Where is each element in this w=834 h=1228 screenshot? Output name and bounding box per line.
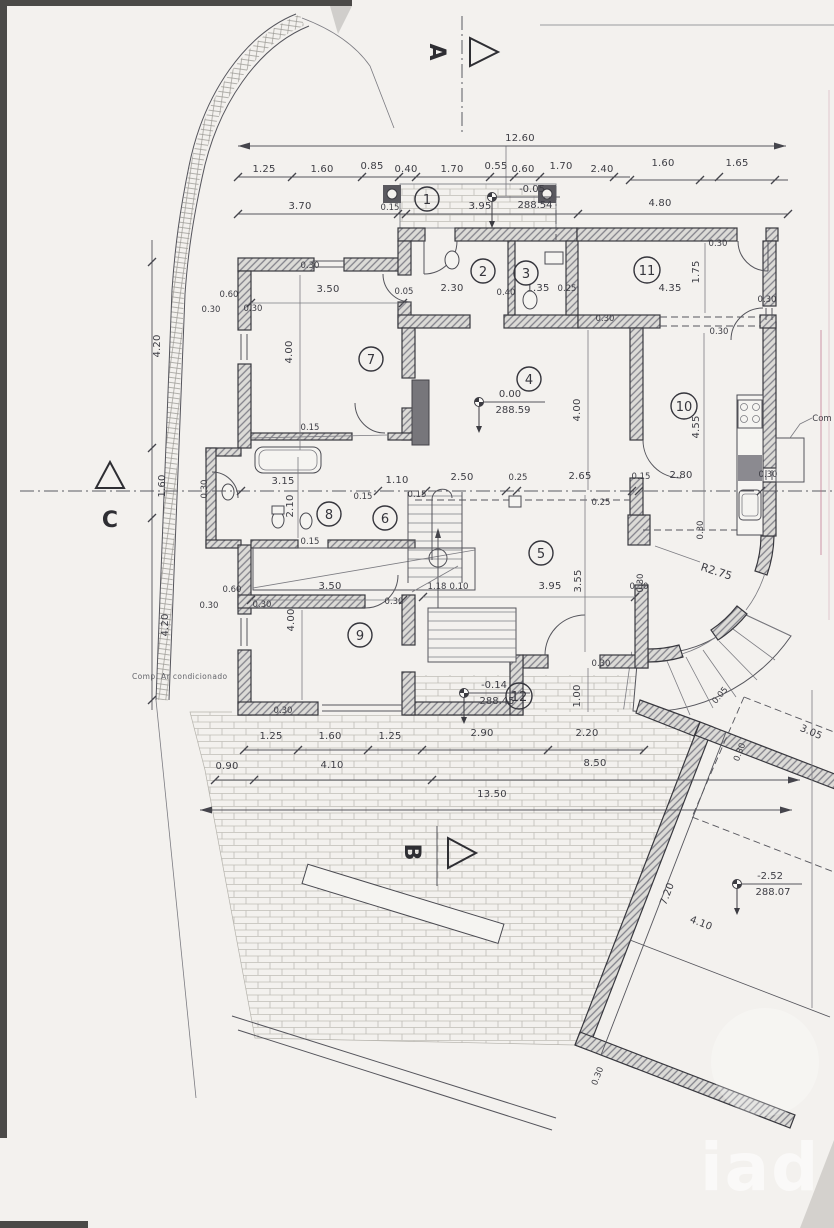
dim-label: 1.18 <box>428 582 447 592</box>
dim-label: 0.15 <box>354 492 373 502</box>
dim-label: 0.25 <box>509 473 528 483</box>
dim-label: 1.25 <box>378 731 401 742</box>
dim-label: 0.30 <box>202 305 221 315</box>
room-number: 1 <box>423 193 431 208</box>
dim-label: 0.60 <box>511 164 534 175</box>
dim-label: 0.40 <box>497 288 516 298</box>
dim-label: 2.65 <box>568 471 591 482</box>
dim-label: 0.05 <box>395 287 414 297</box>
dim-label: 2.90 <box>470 728 493 739</box>
section-letter-c: C <box>102 508 118 533</box>
room-number: 11 <box>639 264 656 279</box>
room-number: 3 <box>522 267 530 282</box>
room-number: 12 <box>511 690 528 705</box>
dim-label: 0.30 <box>596 314 615 324</box>
dim-label: 1.60 <box>651 158 674 169</box>
room-number: 8 <box>325 508 333 523</box>
floor-plan-drawing: 12.60 1.25 1.60 0.85 0.40 1.70 0.55 0.60… <box>0 0 834 1228</box>
elevation-relative: -2.52 <box>757 871 783 882</box>
section-letter-a: A <box>424 43 449 60</box>
room-number: 5 <box>537 547 545 562</box>
dim-label: 2.20 <box>575 728 598 739</box>
dim-label: 4.55 <box>691 415 702 438</box>
dim-label: 4.20 <box>160 613 171 636</box>
elevation-absolute: 288.54 <box>518 200 553 211</box>
dim-label: 1.25 <box>259 731 282 742</box>
dim-label: 3.95 <box>538 581 561 592</box>
room-number: 2 <box>479 265 487 280</box>
elevation-relative: -0.05 <box>519 184 545 195</box>
dim-label: 0.30 <box>710 327 729 337</box>
room-number: 10 <box>676 400 693 415</box>
terrace-steps <box>428 608 516 662</box>
washbasin <box>445 251 459 269</box>
bathtub <box>255 447 321 473</box>
dim-label: 0.30 <box>636 574 646 593</box>
dim-label: 3.70 <box>288 201 311 212</box>
wc2-basin <box>545 252 563 264</box>
dim-label: 0.30 <box>253 600 272 610</box>
dim-label: 0.30 <box>244 304 263 314</box>
elevation-absolute: 288.07 <box>756 887 791 898</box>
dim-label: 4.35 <box>658 283 681 294</box>
dim-label: 4.80 <box>648 198 671 209</box>
dim-label: 2.80 <box>669 470 692 481</box>
dim-label: 1.60 <box>310 164 333 175</box>
dim-label: 0.40 <box>394 164 417 175</box>
dim-label: 2.30 <box>440 283 463 294</box>
room-number: 9 <box>356 629 364 644</box>
dim-label: 4.00 <box>572 398 583 421</box>
dim-label: 0.15 <box>632 472 651 482</box>
room-number: 4 <box>525 373 533 388</box>
dim-label: 1.70 <box>549 161 572 172</box>
dim-label: 0.15 <box>301 423 320 433</box>
dim-label: 0.15 <box>408 490 427 500</box>
dim-label: 4.00 <box>284 340 295 363</box>
dim-label: 0.90 <box>215 761 238 772</box>
dim-label: 0.25 <box>592 498 611 508</box>
dim-label: 0.60 <box>220 290 239 300</box>
room-number: 7 <box>367 353 375 368</box>
elevation-relative: -0.14 <box>481 680 507 691</box>
ac-note: Comp. Ar condicionado <box>132 672 227 681</box>
dim-label: 4.00 <box>286 608 297 631</box>
dim-label: 0.55 <box>484 161 507 172</box>
dim-label: 0.30 <box>709 239 728 249</box>
watermark-text: iad <box>700 1129 820 1206</box>
dim-label: 0.60 <box>223 585 242 595</box>
dim-label: 0.10 <box>450 582 469 592</box>
dim-label: 0.30 <box>592 659 611 669</box>
dim-label: 3.15 <box>271 476 294 487</box>
dim-label: 1.10 <box>385 475 408 486</box>
dim-label: 0.30 <box>759 470 778 480</box>
dim-label: 0.30 <box>301 261 320 271</box>
dim-label: 3.95 <box>468 201 491 212</box>
dim-label: 4.10 <box>320 760 343 771</box>
dim-label: 1.70 <box>440 164 463 175</box>
scanned-floor-plan-page: 12.60 1.25 1.60 0.85 0.40 1.70 0.55 0.60… <box>0 0 834 1228</box>
wc-toilet <box>222 484 234 500</box>
dim-label: 0.30 <box>385 597 404 607</box>
dim-label: 3.50 <box>316 284 339 295</box>
dim-label: 0.85 <box>360 161 383 172</box>
dim-label: 4.20 <box>152 334 163 357</box>
bidet <box>300 513 312 529</box>
dim-label: 0.15 <box>381 203 400 213</box>
dim-label: 1.60 <box>318 731 341 742</box>
dim-label: 1.25 <box>252 164 275 175</box>
dim-label: 3.55 <box>573 569 584 592</box>
dim-label: 0.30 <box>274 706 293 716</box>
dim-label: 3.50 <box>318 581 341 592</box>
dim-label: 2.50 <box>450 472 473 483</box>
dim-label: 0.30 <box>758 295 777 305</box>
dim-label: 0.30 <box>696 521 706 540</box>
elevation-relative: 0.00 <box>499 389 521 400</box>
section-letter-b: B <box>399 844 424 861</box>
elevation-absolute: 288.59 <box>496 405 531 416</box>
dim-label: 1.75 <box>691 260 702 283</box>
dim-label: 1.60 <box>157 474 168 497</box>
dim-label: 0.25 <box>558 284 577 294</box>
dim-label: 1.65 <box>725 158 748 169</box>
dim-label: 8.50 <box>583 758 606 769</box>
dim-label: 2.10 <box>285 494 296 517</box>
dim-label: 0.30 <box>200 601 219 611</box>
dim-label: 0.15 <box>301 537 320 547</box>
dim-label: 13.50 <box>477 789 507 800</box>
room-number: 6 <box>381 512 389 527</box>
dim-label: 0.30 <box>200 480 210 499</box>
dim-label: 12.60 <box>505 133 535 144</box>
dim-label: 2.40 <box>590 164 613 175</box>
dim-label: 1.00 <box>572 684 583 707</box>
